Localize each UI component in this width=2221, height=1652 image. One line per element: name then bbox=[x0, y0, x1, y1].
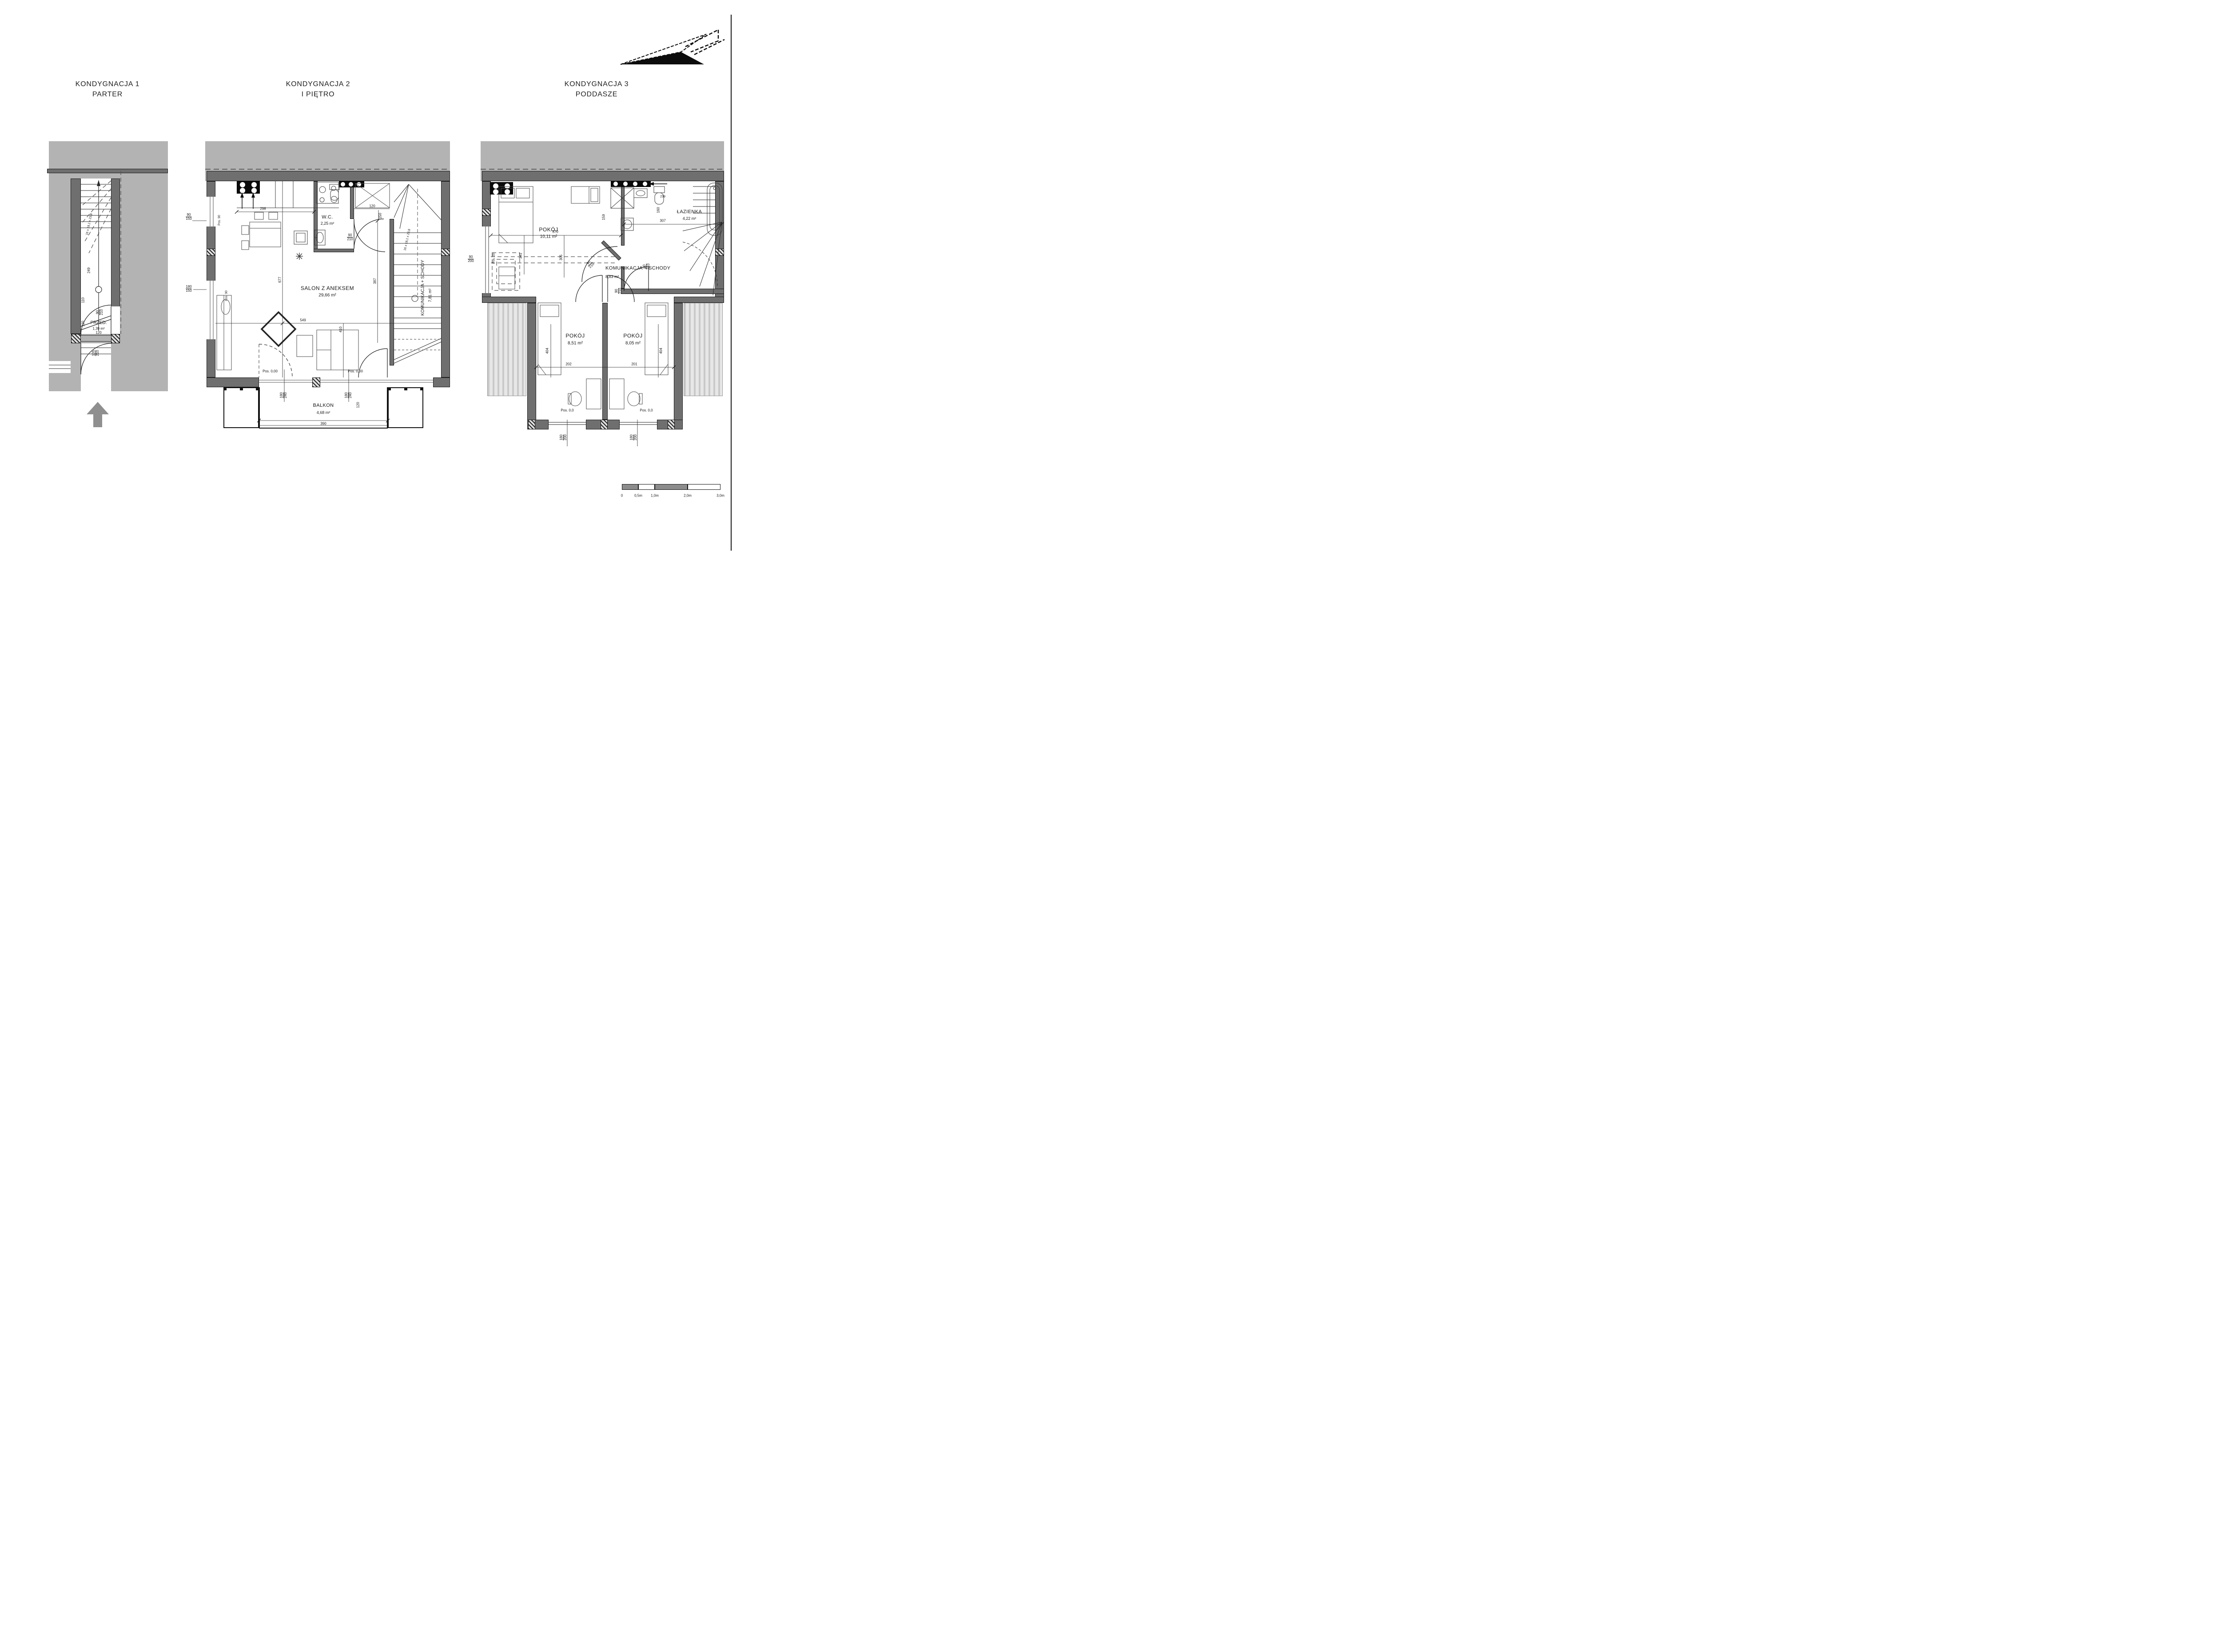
floor2-dim-549: 549 bbox=[300, 318, 306, 322]
floor1-dim-110: 110 bbox=[81, 298, 85, 303]
floor1-title-line1: KONDYGNACJA 1 bbox=[76, 80, 140, 88]
floor1-dim-120h: 120 bbox=[96, 331, 101, 335]
floorplan-sheet: KONDYGNACJA 1 PARTER KONDYGNACJA 2 I PIĘ… bbox=[0, 0, 776, 551]
scalebar-label-3: 3,0m bbox=[716, 494, 724, 498]
floor3-room-door-dim: 90210 bbox=[615, 288, 624, 294]
floor2-balcony-door1-dim: 180240 bbox=[280, 392, 289, 398]
floor3-dim-159: 159 bbox=[602, 214, 606, 220]
floor1-dim-120v: 120 bbox=[81, 321, 85, 326]
floor3-pos-b: Pos. 0,0 bbox=[640, 409, 653, 413]
scalebar-seg4 bbox=[688, 484, 720, 490]
floor3-dim-404b: 404 bbox=[659, 348, 663, 353]
floor2-dim-410: 410 bbox=[339, 326, 343, 332]
floor2-wc-door-dim: 90210 bbox=[347, 234, 353, 242]
floor3-title-line2: PODDASZE bbox=[576, 91, 617, 99]
floor3-dim-202: 202 bbox=[565, 362, 571, 366]
floor3-title-line1: KONDYGNACJA 3 bbox=[565, 80, 629, 88]
scalebar-label-2: 2,0m bbox=[684, 494, 692, 498]
floor3-dim-341: 341 bbox=[519, 253, 523, 258]
floor1-linework bbox=[44, 140, 173, 437]
floor1-room-area: 1,39 m² bbox=[92, 327, 104, 331]
floor3-dim-404a: 404 bbox=[545, 348, 549, 353]
floor2-dim-677: 677 bbox=[278, 277, 282, 282]
floor3-stairs-name: KOMUNIKACJA + SCHODY bbox=[605, 266, 670, 271]
floor3-dim-305: 305 bbox=[559, 254, 563, 260]
floor3-dim-239: 239 bbox=[660, 195, 665, 199]
floor3-room1-area: 10,11 m² bbox=[540, 234, 557, 239]
floor2-balcony-door2-dim: 180240 bbox=[345, 392, 354, 398]
floor2-balcony-area: 4,68 m² bbox=[317, 410, 330, 415]
floor2-dim-120: 120 bbox=[369, 204, 375, 208]
floor2-dim-387: 387 bbox=[373, 278, 377, 284]
floor2-dim-150: 150 bbox=[378, 213, 382, 218]
floor3-bath-area: 4,22 m² bbox=[683, 216, 697, 221]
floor3-room2-name: POKÓJ bbox=[565, 333, 585, 339]
floor3-bath-door-dim: 90210 bbox=[643, 263, 652, 269]
floor3-dim-160: 160 bbox=[657, 207, 661, 213]
floor3-pos-win: Pos. 20 bbox=[493, 253, 496, 264]
floor2-stairs-name: KOMUNIKACJA + SCHODY bbox=[421, 260, 426, 316]
scalebar-label-1: 1,0m bbox=[651, 494, 659, 498]
floor3-dim-307: 307 bbox=[660, 219, 665, 223]
floor2-pos-a: Pos. 0,00 bbox=[263, 369, 278, 373]
floor3-room2-area: 8,51 m² bbox=[568, 341, 583, 346]
floor1-entry-dim: 105210 bbox=[92, 350, 101, 356]
floor2-pos-win2: Pos. 90 bbox=[225, 290, 228, 301]
floor2-wc-area: 2,25 m² bbox=[321, 221, 334, 226]
entrance-arrow-icon bbox=[84, 400, 111, 431]
floor2-dim-390: 390 bbox=[320, 422, 326, 426]
floor3-stairs-area: 8,83 m² bbox=[605, 274, 619, 279]
floor2-dim-120b: 120 bbox=[356, 402, 360, 408]
scalebar-seg1 bbox=[622, 484, 638, 490]
floor2-pos-win1: Pos. 90 bbox=[218, 215, 221, 226]
north-arrow-icon bbox=[615, 20, 726, 73]
floor3-dim-370: 370 bbox=[552, 230, 558, 234]
floor3-windowA-dim: 180200 bbox=[560, 434, 569, 440]
floor2-dim-298: 298 bbox=[260, 207, 266, 211]
floor3-room3-area: 8,05 m² bbox=[625, 341, 641, 346]
floor3-pos-a: Pos. 0,0 bbox=[561, 409, 573, 413]
floor2-window1-dim: 90150 bbox=[186, 213, 191, 222]
floor1-title-line2: PARTER bbox=[92, 91, 123, 99]
sheet-border-line bbox=[731, 15, 732, 551]
floor1-door-dim: 90210 bbox=[96, 309, 105, 315]
floor3-bath-name: ŁAZIENKA bbox=[677, 209, 702, 214]
floor1-dim-249: 249 bbox=[87, 267, 91, 273]
floor3-room3-name: POKÓJ bbox=[623, 333, 642, 339]
floor2-title-line1: KONDYGNACJA 2 bbox=[286, 80, 350, 88]
floor2-stairs-area: 7,81 m² bbox=[428, 289, 432, 302]
floor2-balcony-name: BALKON bbox=[313, 403, 334, 408]
floor3-windowB-dim: 180200 bbox=[630, 434, 639, 440]
floor3-linework bbox=[478, 140, 728, 433]
scalebar-seg2 bbox=[638, 484, 655, 490]
floor2-title-line2: I PIĘTRO bbox=[302, 91, 335, 99]
floor2-salon-area: 29,66 m² bbox=[318, 293, 336, 298]
floor2-wc-name: W.C. bbox=[322, 214, 333, 220]
scalebar-seg3 bbox=[655, 484, 688, 490]
floor2-salon-name: SALON Z ANEKSEM bbox=[301, 285, 354, 291]
floor1-room-name: PRZED. bbox=[91, 321, 107, 326]
scalebar-label-05: 0,5m bbox=[634, 494, 642, 498]
scalebar-label-0: 0 bbox=[621, 494, 623, 498]
floor3-window-left-dim: 90200 bbox=[468, 255, 474, 264]
floor3-dim-201: 201 bbox=[631, 362, 637, 366]
floor2-pos-b: Pos. 0,00 bbox=[348, 369, 363, 373]
floor2-window2-dim: 180150 bbox=[186, 285, 191, 294]
